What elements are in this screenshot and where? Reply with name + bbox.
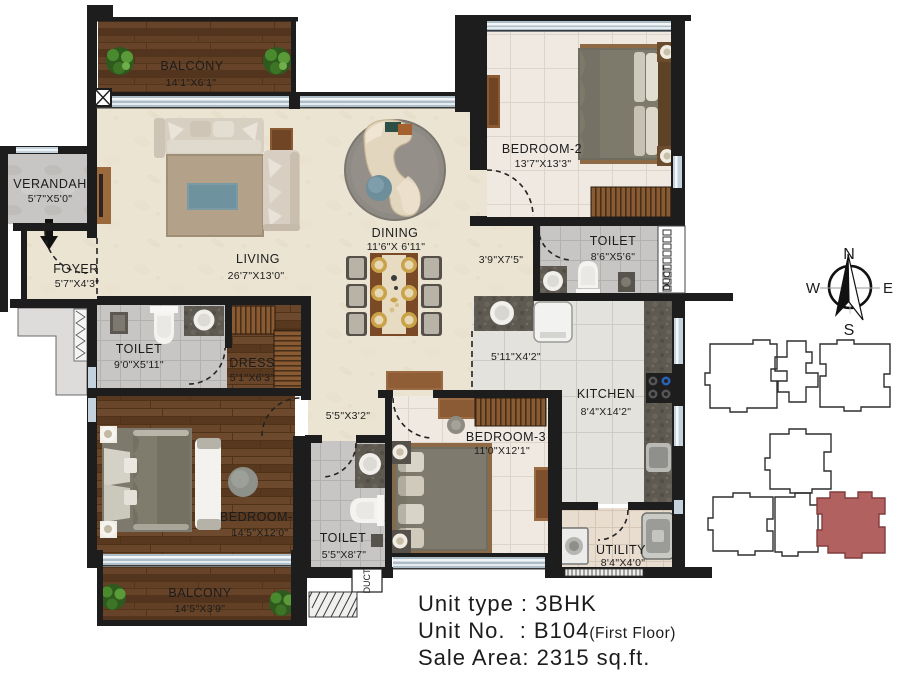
svg-text:26'7"X13'0": 26'7"X13'0"	[228, 270, 285, 282]
svg-text:14'1"X6'1": 14'1"X6'1"	[166, 77, 217, 89]
svg-text:BEDROOM-2: BEDROOM-2	[502, 142, 582, 156]
svg-text:TOILET: TOILET	[590, 234, 637, 248]
svg-text:5'7"X5'0": 5'7"X5'0"	[28, 193, 73, 205]
svg-text:14'5"X12'0": 14'5"X12'0"	[232, 527, 289, 539]
svg-text:8'6"X5'6": 8'6"X5'6"	[591, 251, 636, 263]
svg-text:N: N	[843, 246, 855, 263]
svg-text:11'0"X12'1": 11'0"X12'1"	[474, 445, 530, 457]
svg-text:BALCONY: BALCONY	[160, 59, 223, 73]
svg-text:9'0"X5'11": 9'0"X5'11"	[114, 359, 164, 371]
svg-text:S: S	[844, 322, 855, 339]
svg-text:UTILITY: UTILITY	[596, 543, 646, 557]
svg-text:11'6"X 6'11": 11'6"X 6'11"	[367, 241, 425, 253]
svg-text:BEDROOM-3: BEDROOM-3	[466, 430, 546, 444]
svg-text:3'9"X7'5": 3'9"X7'5"	[479, 254, 524, 266]
svg-text:DRESS: DRESS	[229, 356, 275, 370]
svg-text:E: E	[883, 280, 893, 297]
svg-text:5'5"X3'2": 5'5"X3'2"	[326, 410, 371, 422]
svg-text:5'1"X6'3": 5'1"X6'3"	[230, 372, 275, 384]
svg-text:BALCONY: BALCONY	[168, 586, 231, 600]
svg-text:14'5"X3'9": 14'5"X3'9"	[175, 603, 226, 615]
svg-text:Unit type : 3BHK: Unit type : 3BHK	[418, 591, 597, 616]
svg-text:LIVING: LIVING	[236, 252, 280, 266]
svg-text:8'4"X4'0": 8'4"X4'0"	[601, 557, 646, 569]
svg-text:BEDROOM-1: BEDROOM-1	[220, 510, 300, 524]
svg-text:FOYER: FOYER	[53, 262, 99, 276]
svg-text:Sale Area: 2315 sq.ft.: Sale Area: 2315 sq.ft.	[418, 645, 650, 670]
svg-text:TOILET: TOILET	[116, 342, 163, 356]
svg-text:TOILET: TOILET	[320, 531, 367, 545]
svg-text:13'7"X13'3": 13'7"X13'3"	[515, 158, 572, 170]
svg-text:8'4"X14'2": 8'4"X14'2"	[581, 406, 632, 418]
svg-text:VERANDAH: VERANDAH	[13, 177, 86, 191]
svg-text:DUCT: DUCT	[662, 265, 672, 290]
svg-text:W: W	[806, 280, 821, 297]
svg-text:5'7"X4'3": 5'7"X4'3"	[55, 278, 100, 290]
svg-text:5'5"X8'7": 5'5"X8'7"	[322, 549, 367, 561]
svg-text:DUCT: DUCT	[362, 568, 372, 593]
svg-text:KITCHEN: KITCHEN	[577, 387, 635, 401]
svg-text:5'11"X4'2": 5'11"X4'2"	[491, 351, 541, 363]
svg-text:DINING: DINING	[372, 226, 419, 240]
